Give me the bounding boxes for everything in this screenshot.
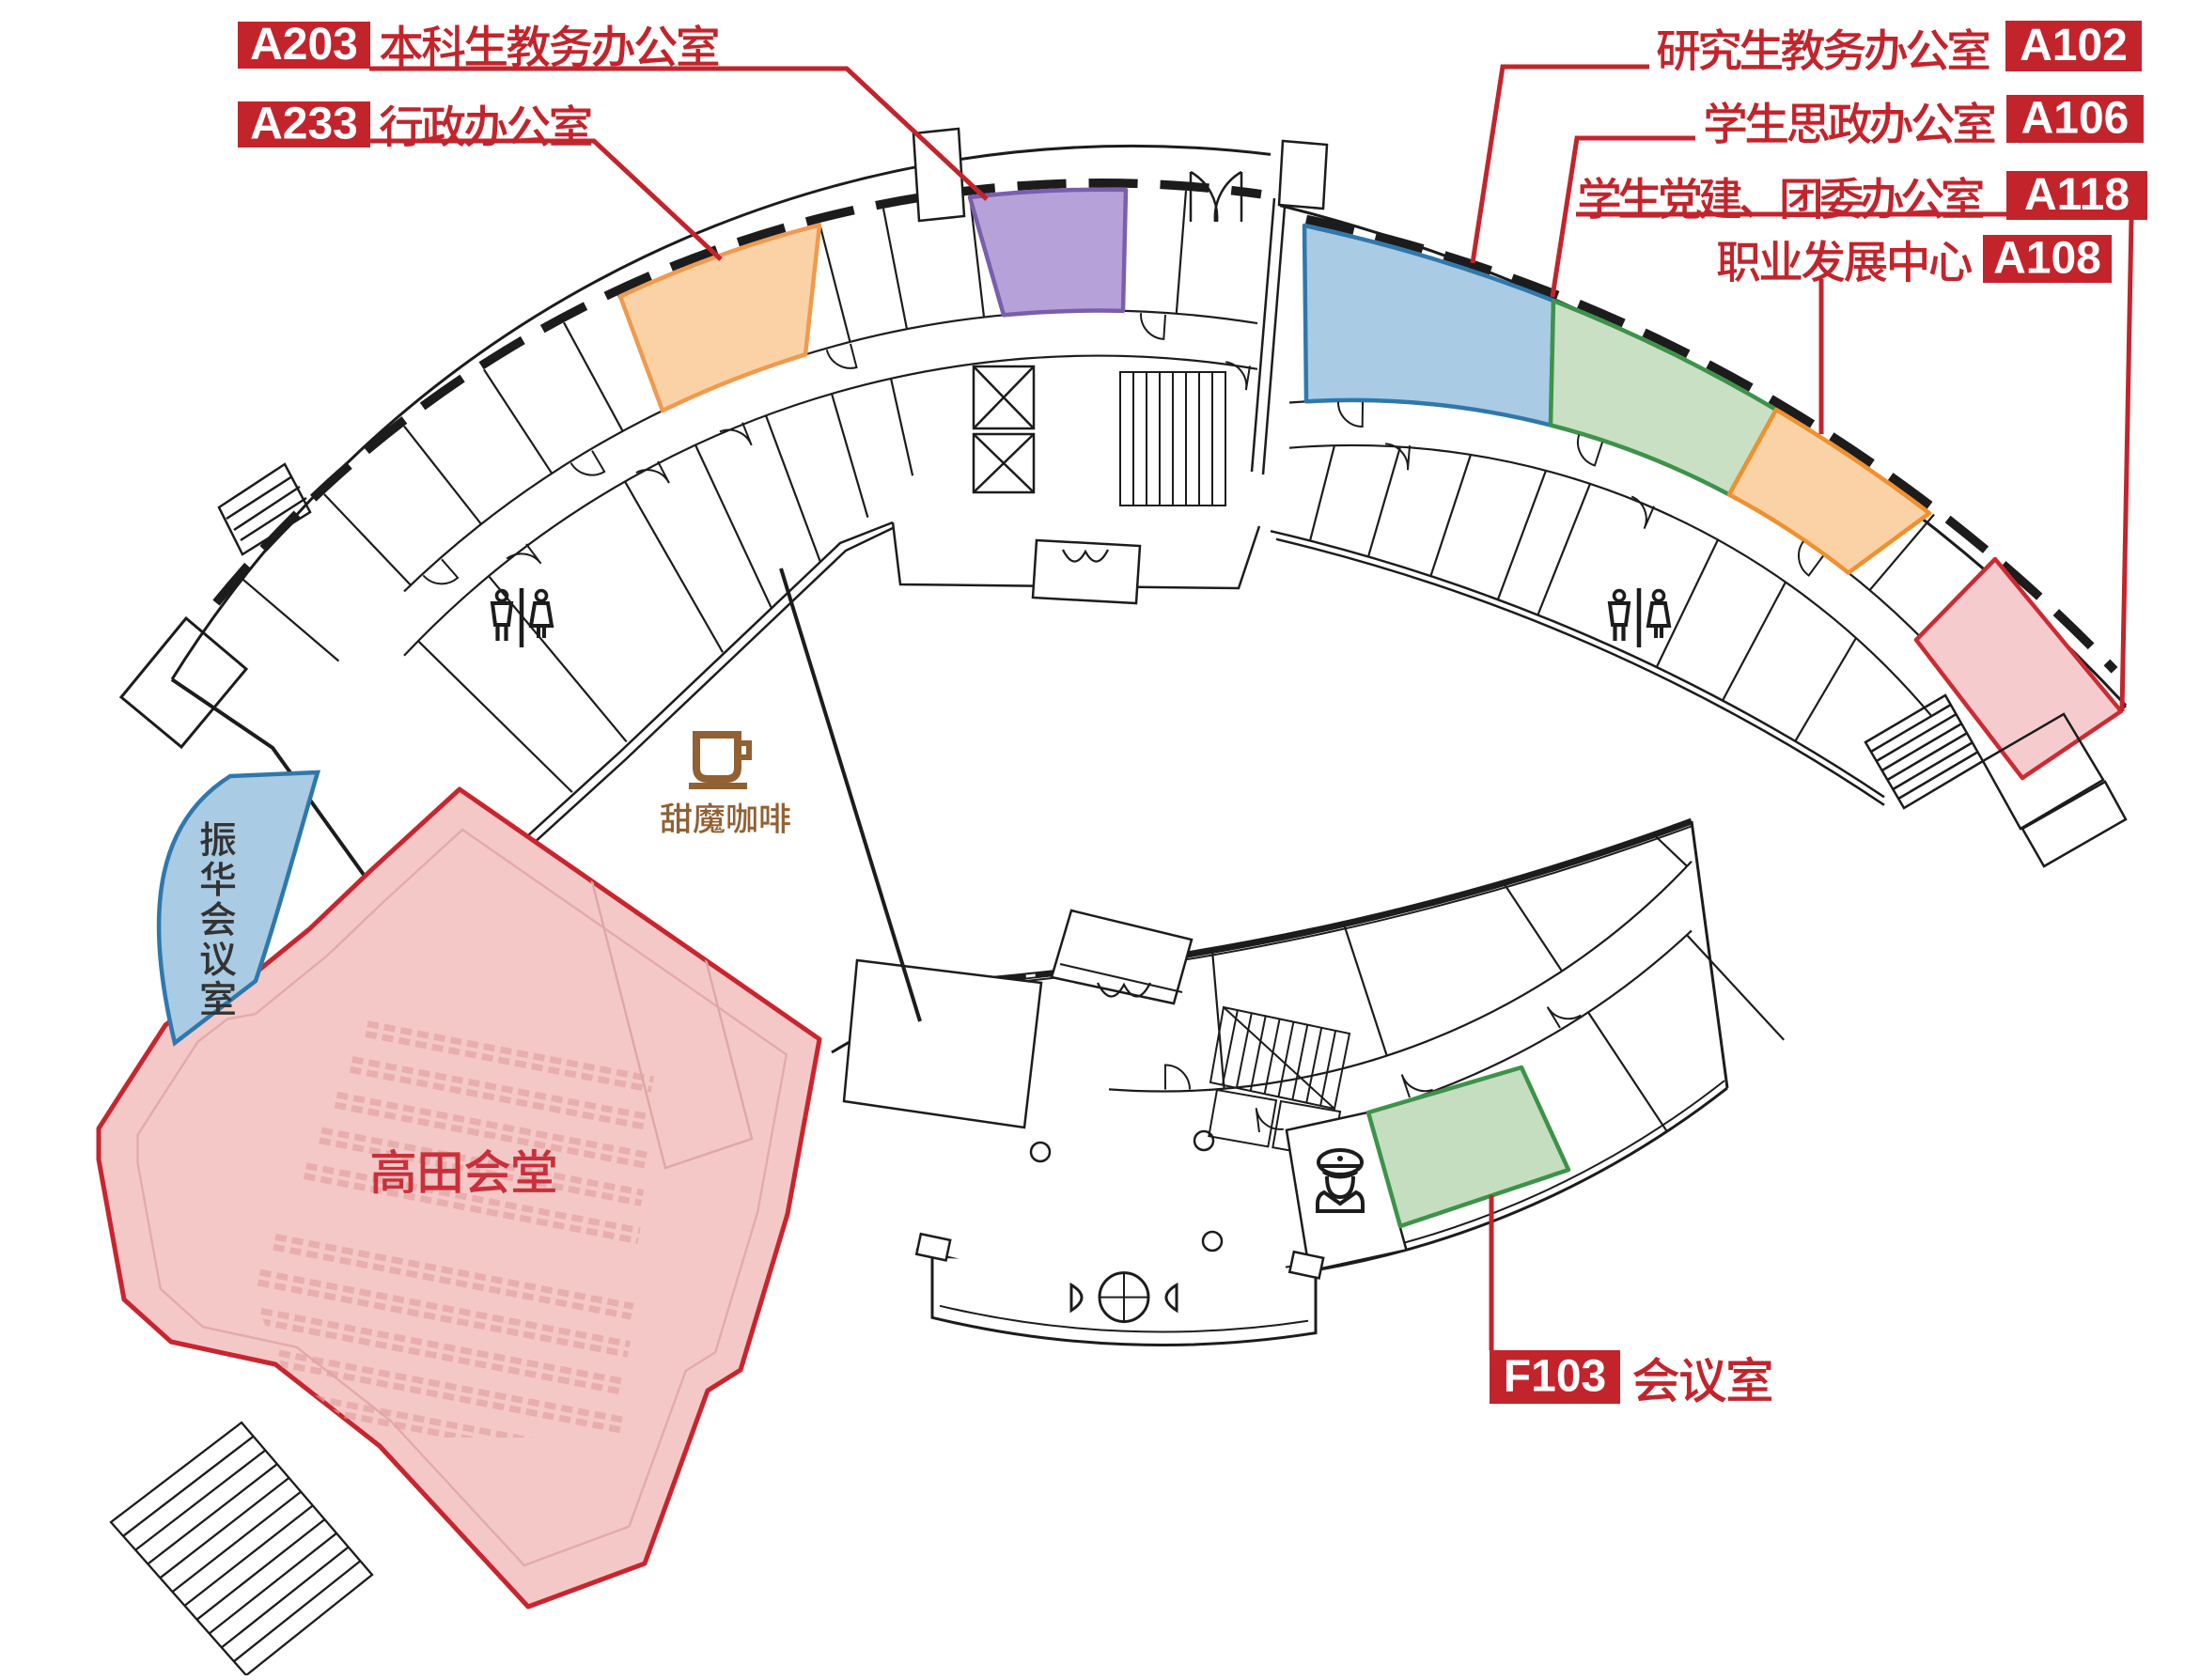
svg-text:A118: A118 bbox=[2024, 170, 2130, 220]
svg-text:A106: A106 bbox=[2021, 94, 2130, 144]
svg-text:A102: A102 bbox=[2020, 21, 2128, 70]
svg-text:F103: F103 bbox=[1504, 1352, 1606, 1402]
svg-text:A108: A108 bbox=[1993, 234, 2101, 284]
svg-text:A233: A233 bbox=[250, 100, 358, 149]
svg-text:A203: A203 bbox=[250, 20, 358, 70]
